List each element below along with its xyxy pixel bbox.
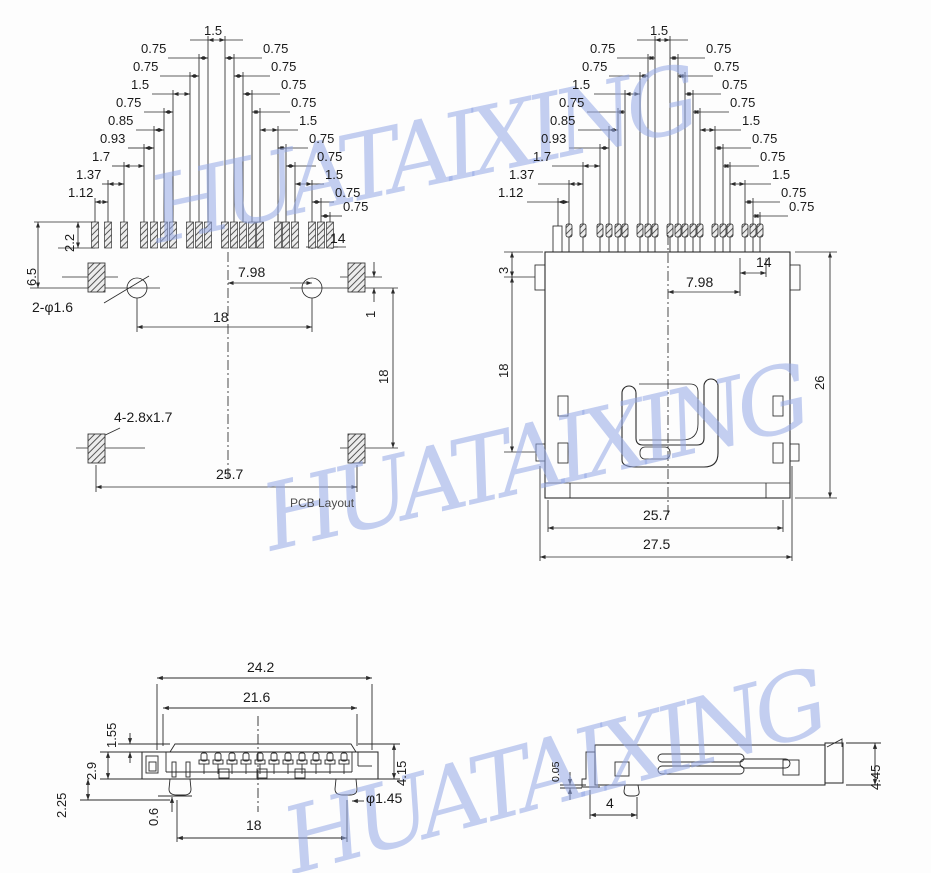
dim-pitch: 1.5: [572, 77, 590, 92]
dim-side-height: 18: [496, 364, 511, 378]
dim-pitch: 0.85: [108, 113, 133, 128]
dim-pitch: 0.75: [590, 41, 615, 56]
dim-pitch: 0.75: [309, 131, 334, 146]
dim-outer-width: 24.2: [247, 659, 274, 675]
dim-mount-span: 25.7: [216, 466, 243, 482]
dim-total-height: 4.45: [868, 765, 883, 790]
pcb-layout-view: [30, 36, 398, 492]
dim-hole-span: 18: [213, 309, 229, 325]
dim-outer-width: 27.5: [643, 536, 670, 552]
dim-pitch: 0.75: [317, 149, 342, 164]
dim-pitch: 1.5: [131, 77, 149, 92]
dim-inner-width: 25.7: [643, 507, 670, 523]
dim-pad-width: 14: [756, 254, 772, 270]
dim-pitch: 0.75: [133, 59, 158, 74]
dim-pitch: 1.5: [299, 113, 317, 128]
dim-pin-row: 3: [496, 267, 511, 274]
dim-total-height: 26: [812, 376, 827, 390]
dim-pitch: 0.75: [559, 95, 584, 110]
dim-pitch: 0.75: [582, 59, 607, 74]
dim-pitch-right: 7.98: [686, 274, 713, 290]
dim-pitch: 0.85: [550, 113, 575, 128]
dim-pitch: 0.75: [781, 185, 806, 200]
dim-pitch: 1.5: [742, 113, 760, 128]
dim-shell-height: 2.9: [84, 762, 99, 780]
dim-pin-span: 18: [246, 817, 262, 833]
dim-pitch: 0.93: [541, 131, 566, 146]
dim-foot: 0.6: [146, 808, 161, 826]
dim-pitch: 1.5: [325, 167, 343, 182]
dim-pitch: 0.75: [291, 95, 316, 110]
dim-pitch: 0.75: [722, 77, 747, 92]
dim-pitch-right: 7.98: [238, 264, 265, 280]
dim-pitch: 1.37: [76, 167, 101, 182]
dim-pitch: 0.75: [263, 41, 288, 56]
view-caption: PCB Layout: [290, 496, 354, 510]
dim-pitch: 0.75: [141, 41, 166, 56]
dim-total-height: 4.15: [394, 761, 409, 786]
peg-dia-callout: φ1.45: [366, 790, 402, 806]
dim-pad-height: 2.2: [62, 234, 77, 252]
dim-pitch: 1.7: [92, 149, 110, 164]
dim-pitch: 1.5: [204, 23, 222, 38]
dim-vertical-span: 18: [376, 370, 391, 384]
dim-pitch: 0.75: [271, 59, 296, 74]
dim-pad-offset: 1: [363, 311, 378, 318]
dim-pitch: 0.75: [116, 95, 141, 110]
dim-pitch: 1.5: [772, 167, 790, 182]
dim-pitch: 1.12: [68, 185, 93, 200]
dim-pitch: 0.75: [714, 59, 739, 74]
hole-callout: 2-φ1.6: [32, 299, 73, 315]
dim-inner-width: 21.6: [243, 689, 270, 705]
dim-pitch: 0.75: [281, 77, 306, 92]
dim-pitch: 1.12: [498, 185, 523, 200]
dim-pitch: 0.75: [730, 95, 755, 110]
dim-pitch: 0.93: [100, 131, 125, 146]
dim-lid-height: 1.55: [104, 723, 119, 748]
dim-lip: 0.05: [550, 762, 562, 782]
technical-drawing-sheet: HUATAIXING HUATAIXING HUATAIXING 1.5 0.7…: [0, 0, 931, 873]
dim-lower-height: 2.25: [54, 793, 69, 818]
dim-pitch: 0.75: [789, 199, 814, 214]
side-section-view: [80, 678, 400, 842]
dim-pitch: 0.75: [706, 41, 731, 56]
dim-pitch: 0.75: [335, 185, 360, 200]
drawing-linework: [0, 0, 931, 873]
dim-foot-offset: 4: [606, 795, 614, 811]
dim-pad-width: 14: [330, 230, 346, 246]
dim-pitch: 0.75: [760, 149, 785, 164]
dim-pitch: 0.75: [343, 199, 368, 214]
dim-pitch: 1.37: [509, 167, 534, 182]
dim-pitch: 1.5: [650, 23, 668, 38]
slot-callout: 4-2.8x1.7: [114, 409, 172, 425]
dim-pitch: 1.7: [533, 149, 551, 164]
dim-pitch: 0.75: [752, 131, 777, 146]
dim-edge-to-hole: 6.5: [24, 268, 39, 286]
